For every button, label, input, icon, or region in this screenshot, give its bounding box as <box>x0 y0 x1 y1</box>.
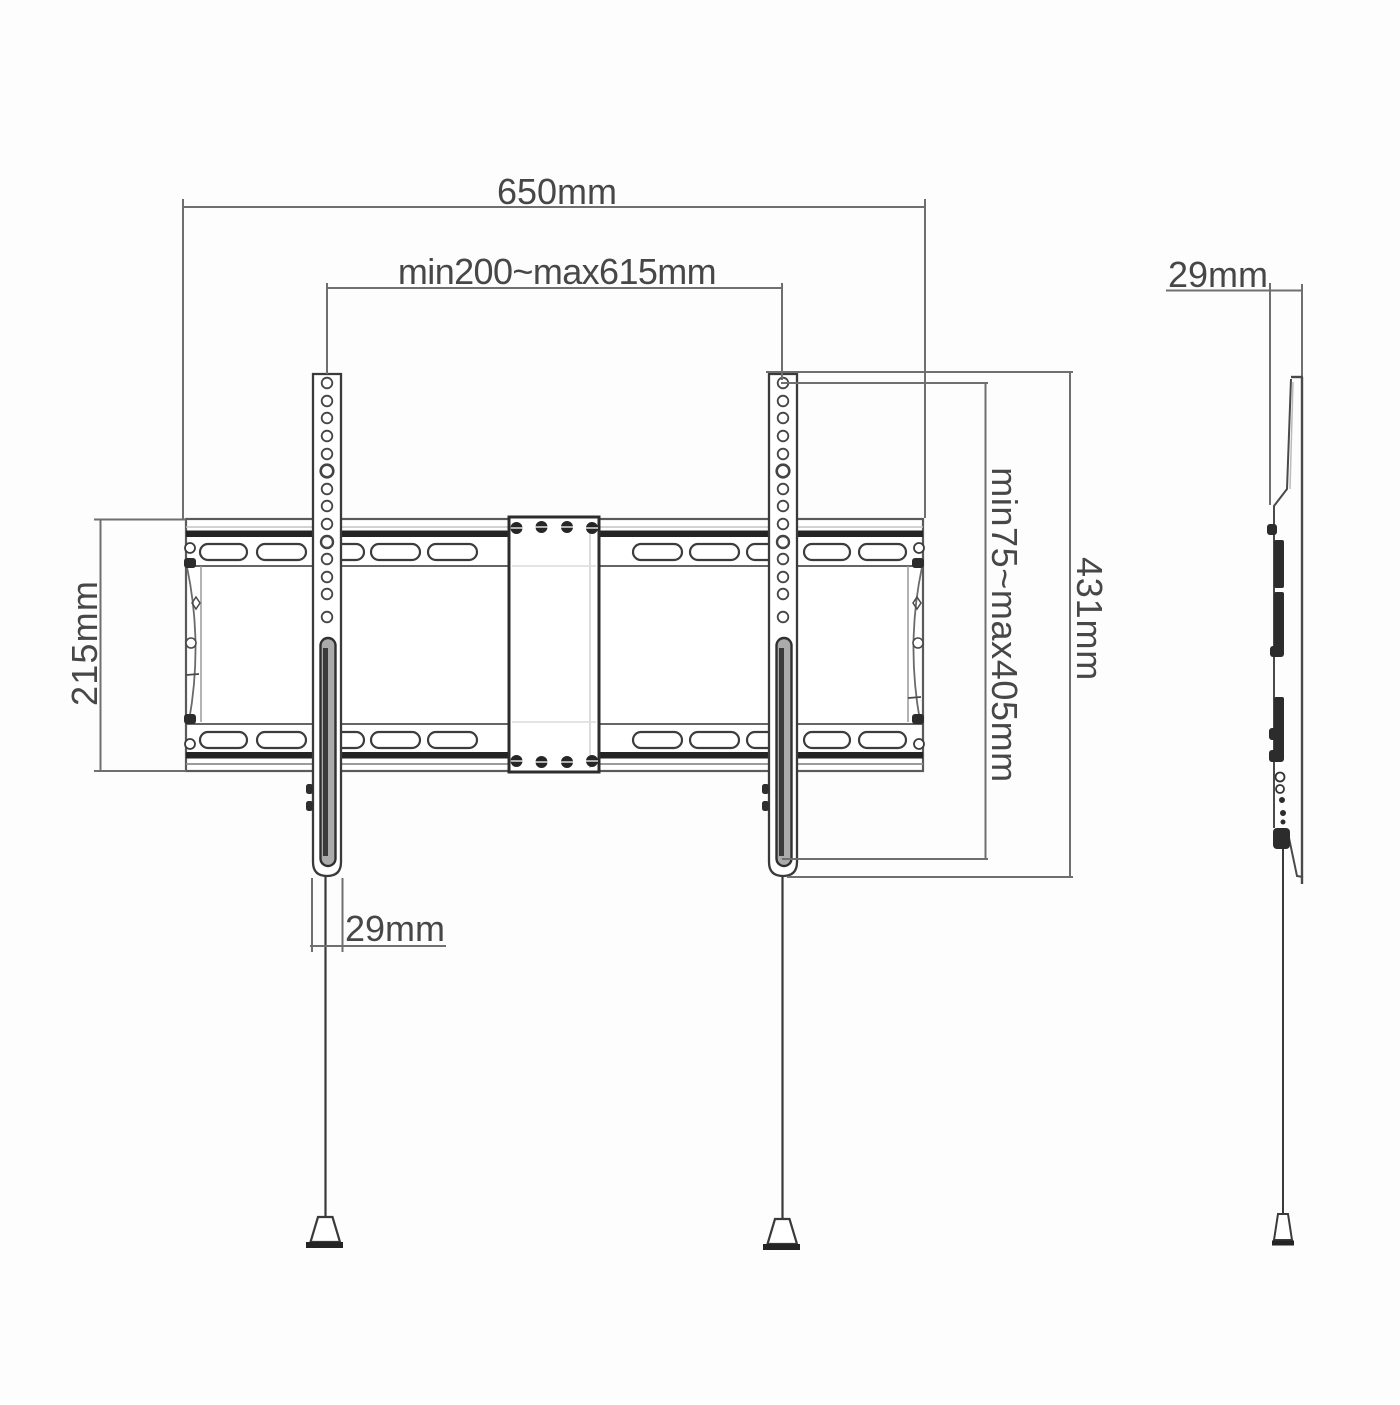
svg-text:650mm: 650mm <box>497 171 617 212</box>
svg-text:min75~max405mm: min75~max405mm <box>984 467 1025 783</box>
svg-text:431mm: 431mm <box>1069 557 1110 681</box>
svg-text:min200~max615mm: min200~max615mm <box>398 251 716 292</box>
svg-text:29mm: 29mm <box>345 908 445 949</box>
svg-text:215mm: 215mm <box>64 580 105 706</box>
svg-text:29mm: 29mm <box>1168 254 1268 295</box>
